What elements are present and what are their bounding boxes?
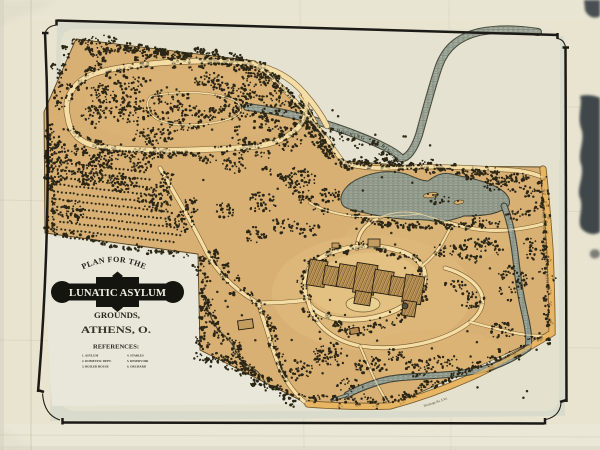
- svg-text:LUNATIC ASYLUM: LUNATIC ASYLUM: [69, 287, 167, 299]
- svg-text:GROUNDS,: GROUNDS,: [94, 311, 140, 320]
- svg-text:5. RESERVOIR: 5. RESERVOIR: [127, 359, 149, 363]
- svg-text:4. STABLES: 4. STABLES: [127, 354, 144, 358]
- svg-text:6. ORCHARD: 6. ORCHARD: [127, 365, 147, 369]
- svg-text:REFERENCES:: REFERENCES:: [93, 345, 139, 351]
- svg-text:1. ASYLUM: 1. ASYLUM: [82, 354, 98, 358]
- svg-text:2. DOMESTIC DEPT.: 2. DOMESTIC DEPT.: [82, 359, 112, 363]
- svg-text:3. BOILER HOUSE: 3. BOILER HOUSE: [82, 365, 109, 369]
- svg-text:ATHENS, O.: ATHENS, O.: [81, 326, 151, 336]
